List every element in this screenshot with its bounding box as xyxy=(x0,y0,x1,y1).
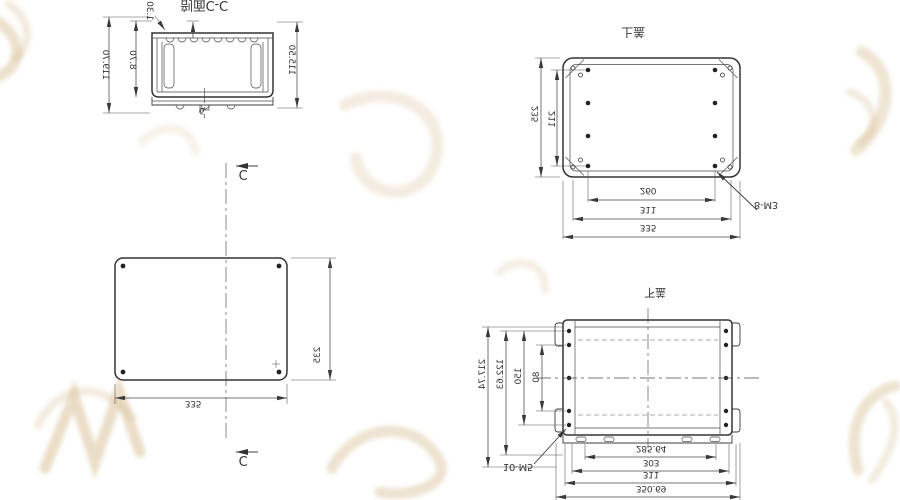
screw-note-10-m5: 10-M5 xyxy=(503,461,533,472)
plan-dim-height: 235 xyxy=(313,347,323,364)
top-cover-title: 上盖 xyxy=(621,25,645,39)
top-cover-outline xyxy=(563,58,740,177)
section-mark-bottom: C xyxy=(239,452,248,467)
screw-note-8-m3: 8-M3 xyxy=(754,199,778,210)
dim-bottom-3: 311 xyxy=(643,469,660,479)
top-cover-screw-holes xyxy=(586,68,718,169)
section-body-outline xyxy=(152,33,273,118)
dim-hole: 6 xyxy=(199,105,205,115)
plan-dim-width: 335 xyxy=(185,398,202,408)
plan-outline xyxy=(115,258,287,380)
drawing-page: 剖面C-C 119.70 8.70 1.30 xyxy=(0,0,900,500)
top-cover-corner-tabs xyxy=(566,60,738,176)
view-bottom-cover: 下盖 217.74 xyxy=(478,286,762,500)
dim-screw-span: 311 xyxy=(640,204,657,214)
bottom-cover-screw-note: 10-M5 xyxy=(503,429,566,472)
technical-drawing: 剖面C-C 119.70 8.70 1.30 xyxy=(0,0,900,500)
dim-bottom-4: 350.69 xyxy=(636,483,667,493)
dim-left-3: 150 xyxy=(514,368,524,385)
bottom-cover-outline xyxy=(563,320,732,435)
dim-width: 335 xyxy=(640,222,657,232)
dim-height: 235 xyxy=(531,106,541,123)
bottom-cover-left-dimensions: 217.74 122.63 150 80 xyxy=(478,327,566,467)
dim-wall: 1.30 xyxy=(144,1,154,21)
bottom-cover-flange xyxy=(563,435,732,443)
section-cut-marks: C C xyxy=(236,166,258,467)
section-title: 剖面C-C xyxy=(180,0,228,12)
dim-total-height: 119.70 xyxy=(100,49,110,80)
dim-hole-cols: 260 xyxy=(640,185,657,195)
section-mark-top: C xyxy=(239,166,248,181)
dim-bottom-2: 303 xyxy=(643,457,660,467)
bottom-cover-title: 下盖 xyxy=(644,286,666,300)
bottom-cover-corner-ears xyxy=(555,323,740,432)
dim-left-2: 122.63 xyxy=(496,359,506,389)
plan-dimensions: 235 335 xyxy=(115,258,336,408)
view-section-cc: 剖面C-C 119.70 8.70 1.30 xyxy=(100,0,303,118)
dim-left-4: 80 xyxy=(532,371,542,383)
view-plan: C C 235 335 xyxy=(115,163,336,467)
dim-lid: 8.70 xyxy=(127,50,137,70)
dim-inner-height: 115.50 xyxy=(286,44,296,75)
plan-screw-holes xyxy=(121,264,282,375)
dim-left-1: 217.74 xyxy=(478,359,488,390)
dim-hole-rows: 211 xyxy=(548,111,558,128)
dim-bottom-1: 285.64 xyxy=(636,443,667,453)
view-top-cover: 上盖 260 311 335 235 xyxy=(531,25,778,239)
bottom-cover-bottom-dimensions: 285.64 303 311 350.69 xyxy=(556,443,740,500)
watermark xyxy=(0,4,895,494)
